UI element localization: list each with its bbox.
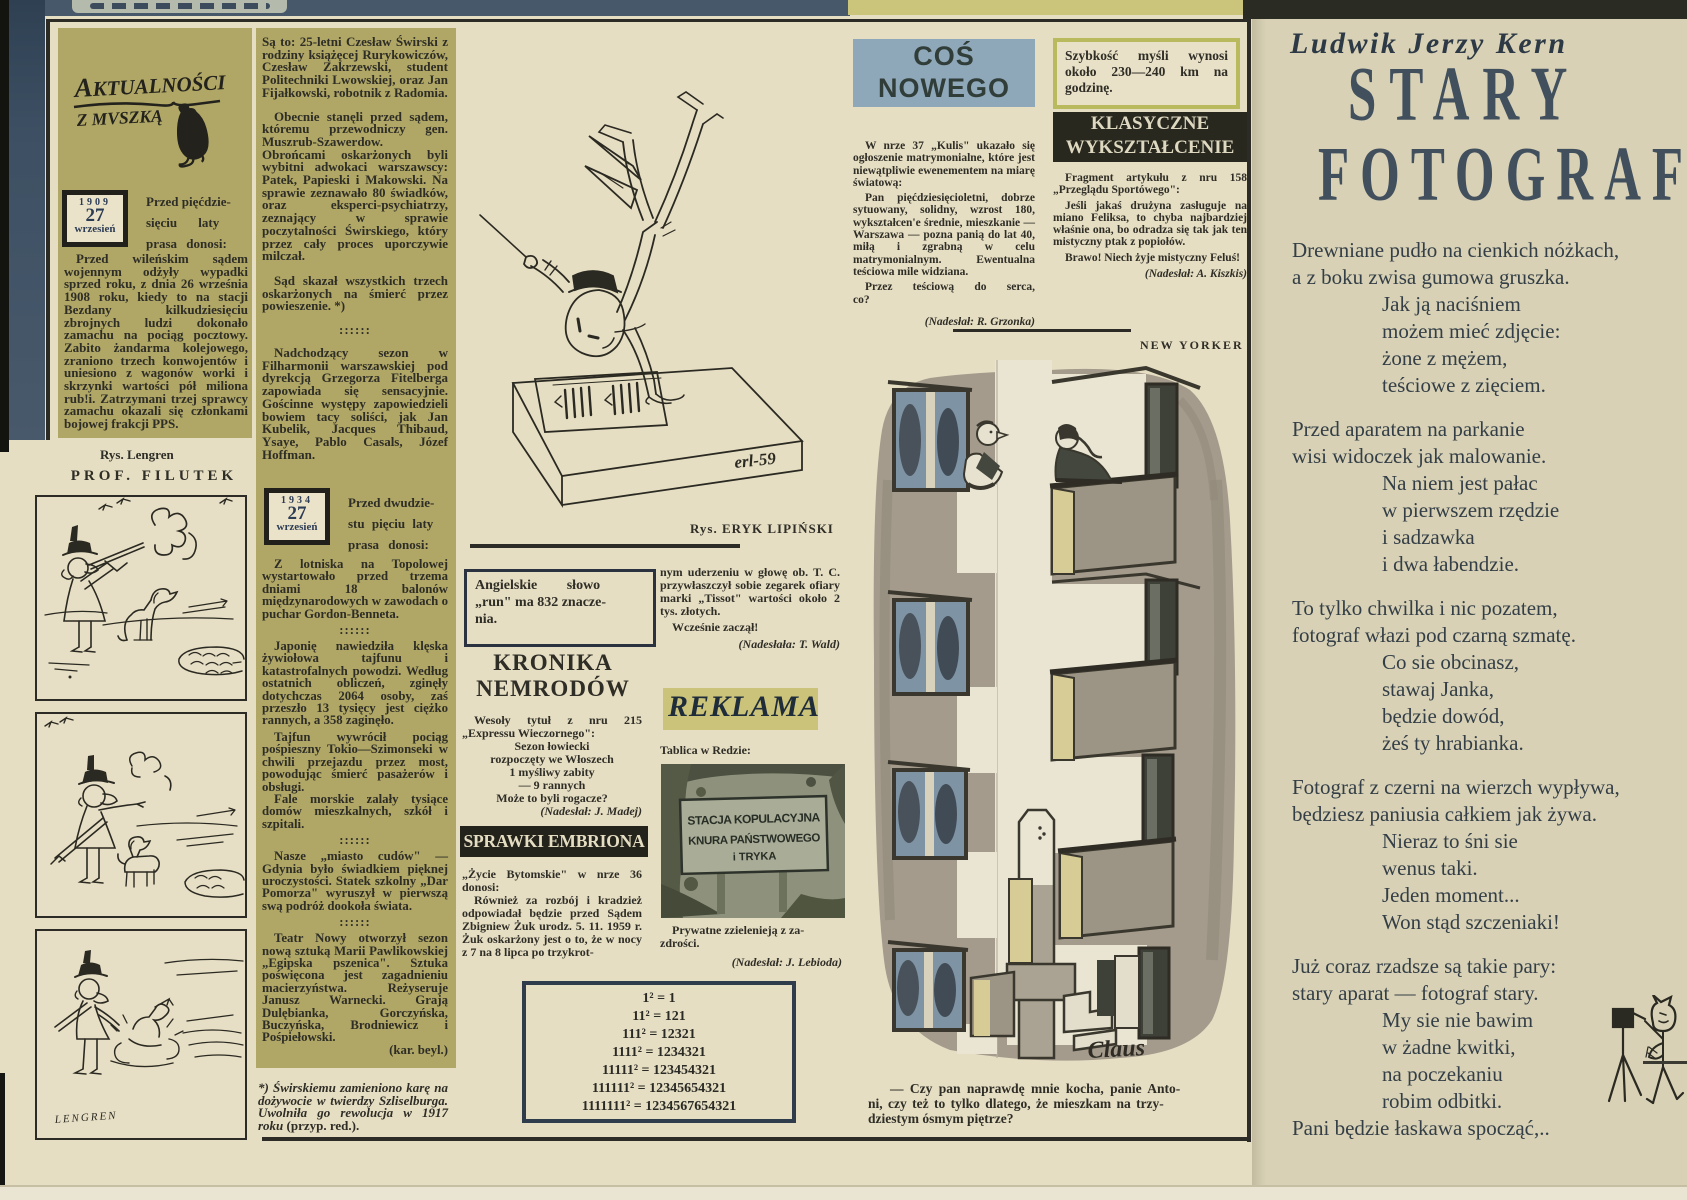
svg-text:Z MVSZKĄ: Z MVSZKĄ: [75, 106, 163, 131]
svg-text:LENGREN: LENGREN: [53, 1110, 118, 1126]
svg-text:AKTUALNOŚCI: AKTUALNOŚCI: [72, 65, 227, 103]
svg-text:i TRYKA: i TRYKA: [733, 850, 777, 863]
svg-text:erl-59: erl-59: [733, 449, 777, 472]
svg-text:Claus: Claus: [1087, 1035, 1146, 1064]
